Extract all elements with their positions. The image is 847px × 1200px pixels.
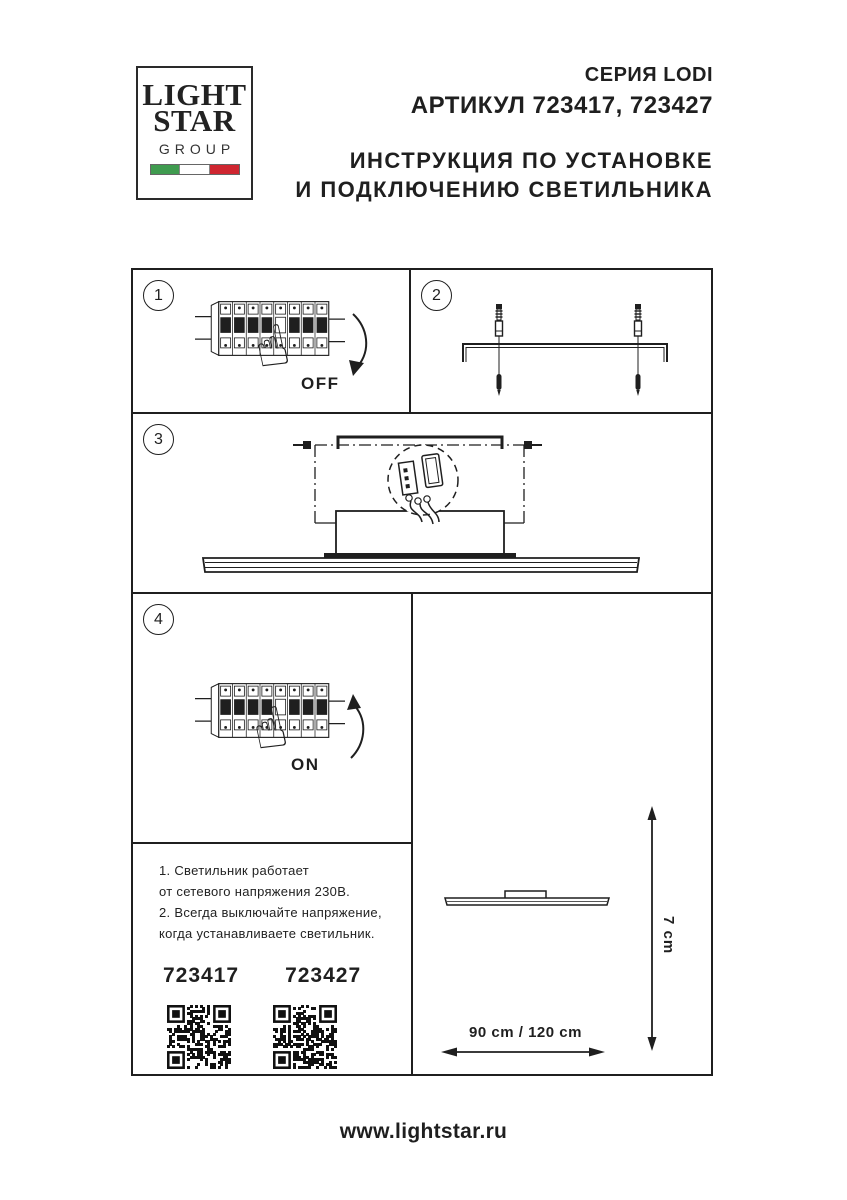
bracket-drawing	[411, 270, 711, 412]
logo-word-group: GROUP	[143, 141, 251, 157]
series-title: СЕРИЯ LODI	[295, 64, 713, 87]
arrow-up-icon	[327, 692, 369, 760]
flag-stripe-green	[151, 165, 180, 174]
step-3-panel: 3	[133, 414, 711, 592]
flag-stripe-white	[179, 165, 209, 174]
step-4-badge: 4	[143, 604, 174, 635]
step-4-number: 4	[154, 611, 163, 629]
instruction-title-line1: ИНСТРУКЦИЯ ПО УСТАНОВКЕ	[295, 147, 713, 176]
on-label: ON	[291, 755, 320, 775]
italian-flag-icon	[150, 164, 240, 175]
logo-word-star: STAR	[138, 108, 251, 134]
height-dimension-label: 7 cm	[660, 916, 677, 954]
flag-stripe-red	[209, 165, 239, 174]
note-line: от сетевого напряжения 230В.	[159, 881, 401, 902]
qr-code-723417	[167, 1005, 231, 1069]
instruction-sheet: LIGHT STAR GROUP СЕРИЯ LODI АРТИКУЛ 7234…	[0, 0, 847, 1200]
article-723427: 723427	[285, 964, 361, 988]
dimensions-panel: 7 cm 90 cm / 120 cm	[413, 594, 711, 1074]
note-line: 2. Всегда выключайте напряжение,	[159, 902, 401, 923]
instruction-title-line2: И ПОДКЛЮЧЕНИЮ СВЕТИЛЬНИКА	[295, 176, 713, 205]
article-row: 723417 723427	[163, 964, 411, 988]
step-1-badge: 1	[143, 280, 174, 311]
article-numbers: АРТИКУЛ 723417, 723427	[295, 92, 713, 120]
step-1-panel: 1 ☝ OFF	[133, 270, 411, 412]
lightstar-logo: LIGHT STAR GROUP	[136, 66, 253, 200]
note-line: когда устанавливаете светильник.	[159, 923, 401, 944]
header: СЕРИЯ LODI АРТИКУЛ 723417, 723427 ИНСТРУ…	[295, 64, 713, 204]
note-line: 1. Светильник работает	[159, 860, 401, 881]
qr-row	[167, 1005, 411, 1069]
step-1-number: 1	[154, 287, 163, 305]
fixture-dimensions-drawing	[413, 594, 713, 1072]
notes-panel: 1. Светильник работает от сетевого напря…	[133, 844, 411, 1074]
arrow-down-icon	[331, 312, 373, 378]
safety-notes: 1. Светильник работает от сетевого напря…	[133, 844, 411, 944]
step-2-panel: 2	[411, 270, 711, 412]
steps-grid: 1 ☝ OFF 2	[131, 268, 713, 1076]
article-723417: 723417	[163, 964, 239, 988]
width-dimension-label: 90 cm / 120 cm	[448, 1024, 603, 1041]
off-label: OFF	[301, 374, 340, 394]
step-4-panel: 4 ☝ ON	[133, 594, 411, 844]
qr-code-723427	[273, 1005, 337, 1069]
mounting-assembly-drawing	[133, 414, 711, 590]
website-url: www.lightstar.ru	[0, 1120, 847, 1144]
